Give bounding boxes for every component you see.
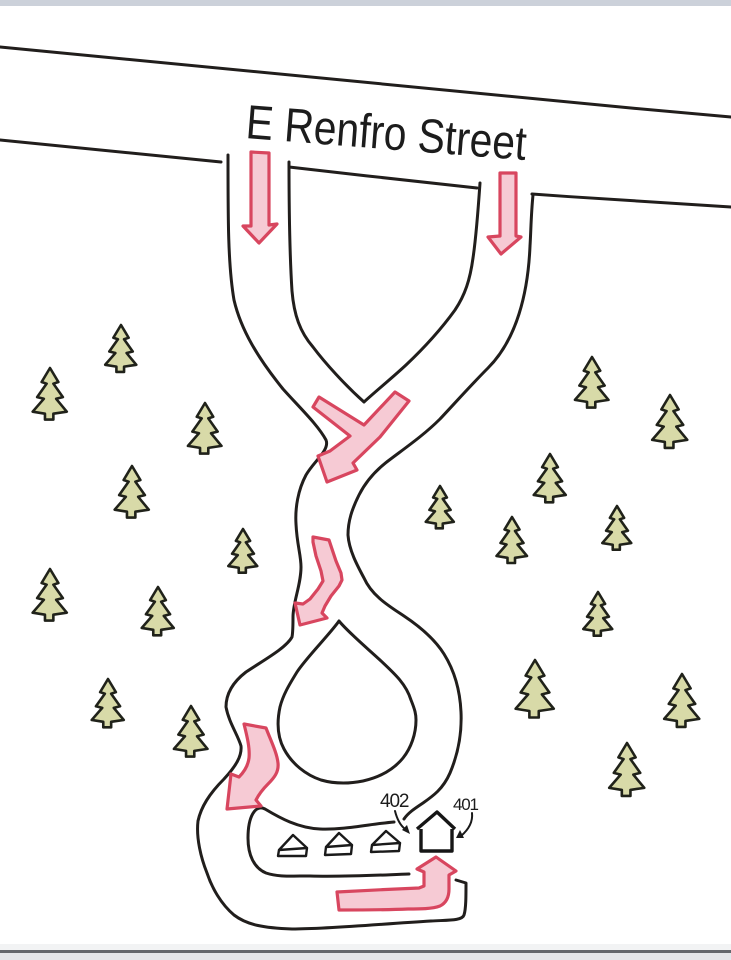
svg-text:401: 401 xyxy=(453,795,479,814)
svg-text:402: 402 xyxy=(380,791,410,812)
